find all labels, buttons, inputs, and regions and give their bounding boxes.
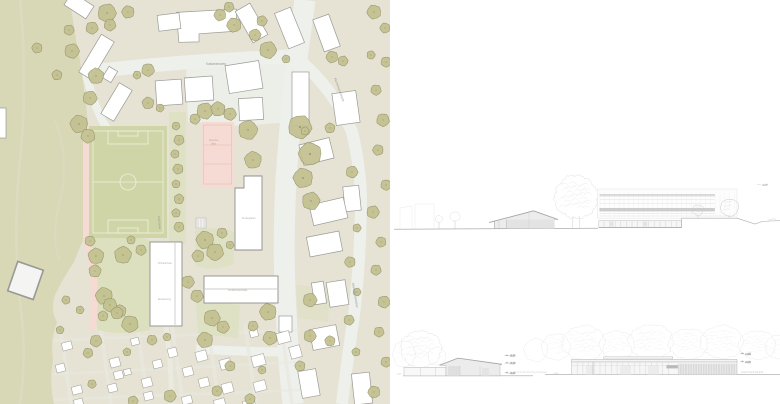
svg-text:+3.20: +3.20 <box>745 362 752 364</box>
svg-text:+4.95: +4.95 <box>745 354 752 356</box>
svg-text:Dreifachsporthalle: Dreifachsporthalle <box>228 289 248 292</box>
svg-text:Primarschule: Primarschule <box>158 262 173 265</box>
svg-text:Kindergarten: Kindergarten <box>242 217 256 220</box>
svg-text:Ansicht Nord Werkhof: Ansicht Nord Werkhof <box>741 371 764 374</box>
svg-text:Schnitt Werkhof Sportanlagen: Schnitt Werkhof Sportanlagen <box>514 371 548 374</box>
svg-text:Erweiterung: Erweiterung <box>158 298 171 301</box>
svg-text:+0.00: +0.00 <box>396 374 402 376</box>
svg-text:Kastanienweg: Kastanienweg <box>206 62 226 66</box>
svg-text:platz: platz <box>211 143 217 146</box>
svg-text:+5.64: +5.64 <box>510 356 517 358</box>
svg-text:+9.30: +9.30 <box>762 184 768 186</box>
svg-text:+0.00: +0.00 <box>553 373 559 375</box>
svg-text:+3.20: +3.20 <box>510 363 517 365</box>
